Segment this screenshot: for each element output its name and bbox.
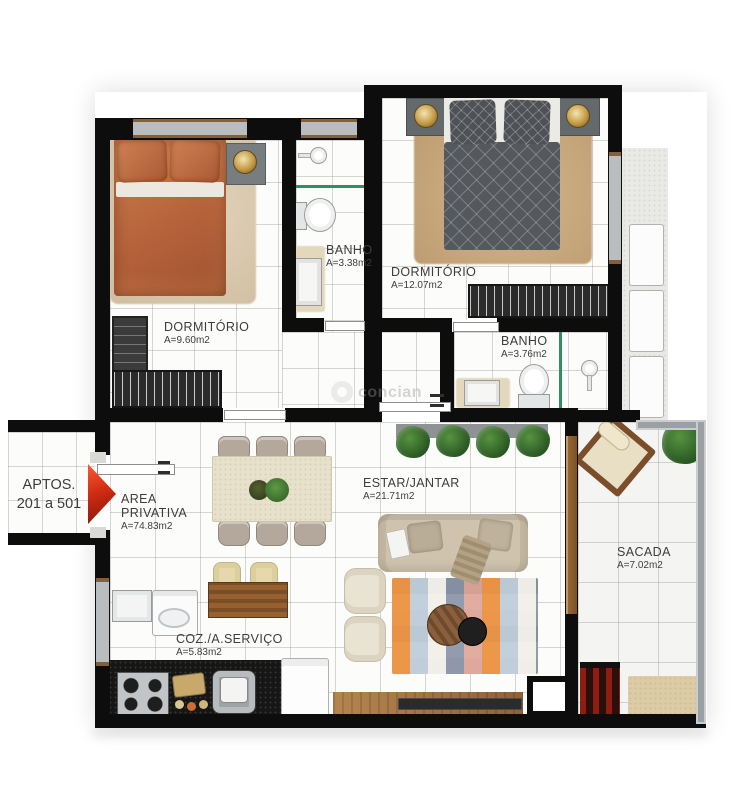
room-name: DORMITÓRIO [164, 320, 249, 334]
bedroom1-dresser [112, 370, 222, 408]
wall [440, 408, 578, 422]
room-area: A=21.71m2 [363, 491, 460, 502]
wall [565, 714, 706, 728]
room-area: A=9.60m2 [164, 335, 249, 346]
balcony-railing [696, 420, 706, 724]
wall [95, 714, 578, 728]
switch-mark [430, 394, 444, 397]
room-label-sacada: SACADA A=7.02m2 [617, 545, 671, 571]
window [609, 152, 621, 264]
laundry-tank [112, 590, 152, 622]
duct-box-inner [533, 682, 566, 711]
room-label-banho-1: BANHO A=3.38m2 [326, 243, 372, 269]
bath2-shower-arm [587, 375, 592, 391]
room-name: DORMITÓRIO [391, 265, 476, 279]
room-name: AREA PRIVATIVA [121, 492, 191, 520]
bedroom2-pillow [449, 99, 497, 145]
room-label-banho-2: BANHO A=3.76m2 [501, 334, 547, 360]
wall [282, 318, 324, 332]
room-name: ESTAR/JANTAR [363, 476, 460, 490]
room-label-dormitorio-2: DORMITÓRIO A=12.07m2 [391, 265, 476, 291]
coffee-table-black [458, 617, 487, 646]
wall [285, 408, 380, 422]
room-area: A=3.76m2 [501, 349, 547, 360]
room-area: A=12.07m2 [391, 280, 476, 291]
bedroom2-lamp [566, 104, 590, 128]
switch-mark [158, 471, 170, 474]
bowl [199, 700, 208, 709]
bath2-glass-divider [559, 332, 562, 408]
ac-unit [629, 356, 664, 418]
room-label-dormitorio-1: DORMITÓRIO A=9.60m2 [164, 320, 249, 346]
plant [476, 426, 510, 458]
room-name: SACADA [617, 545, 671, 559]
dining-table-plant [265, 478, 289, 502]
ac-unit [629, 290, 664, 352]
kitchen-sink-basin [220, 677, 248, 703]
entrance-sign: APTOS. 201 a 501 [8, 476, 90, 514]
window [133, 119, 247, 138]
bath2-toilet-tank [518, 394, 550, 409]
bedroom1-pillow [169, 139, 220, 183]
wall [8, 533, 95, 545]
room-area: A=74.83m2 [121, 521, 191, 532]
door-bath-2 [453, 322, 499, 332]
wall [578, 410, 640, 422]
armchair [344, 568, 386, 614]
tv [398, 698, 522, 710]
wall [368, 318, 452, 332]
bath2-toilet-bowl [519, 364, 549, 398]
door-bath-1 [325, 321, 365, 331]
window [301, 119, 357, 138]
wall [282, 118, 296, 332]
floor-plan: DORMITÓRIO A=9.60m2 BANHO A=3.38m2 DORMI… [0, 0, 755, 800]
wall [95, 118, 110, 455]
room-label-coz-servico: COZ./A.SERVIÇO A=5.83m2 [176, 632, 283, 658]
watermark-logo-icon [331, 381, 353, 403]
washing-machine-door [158, 608, 190, 628]
ac-unit [629, 224, 664, 286]
plant [516, 425, 550, 457]
dining-chair [218, 520, 250, 546]
sofa-cushion [406, 520, 443, 554]
bedroom1-sheet [116, 182, 224, 197]
plant [436, 425, 470, 457]
room-area: A=7.02m2 [617, 560, 671, 571]
room-name: COZ./A.SERVIÇO [176, 632, 283, 646]
switch-mark [158, 461, 170, 464]
cutting-board [172, 672, 206, 698]
bowl [187, 702, 196, 711]
room-label-estar-jantar: ESTAR/JANTAR A=21.71m2 [363, 476, 460, 502]
window [96, 578, 109, 666]
armchair [344, 616, 386, 662]
bowl [175, 700, 184, 709]
wall [8, 420, 95, 432]
bedroom2-dresser [468, 284, 614, 318]
dining-chair [294, 520, 326, 546]
bath1-toilet-bowl [304, 198, 336, 232]
bedroom2-duvet [444, 142, 560, 250]
breakfast-bar [208, 582, 288, 618]
bedroom1-wardrobe [112, 316, 148, 374]
watermark-text: concian [358, 384, 422, 402]
balcony-sliding-door [566, 436, 577, 614]
dining-chair [256, 520, 288, 546]
bedroom2-pillow [503, 99, 551, 145]
bath1-glass-divider [296, 185, 364, 188]
room-area: A=3.38m2 [326, 258, 372, 269]
stove [117, 672, 169, 716]
switch-mark [430, 404, 444, 407]
door-bedroom-1 [224, 410, 286, 420]
room-name: BANHO [501, 334, 547, 348]
balcony-mat [628, 676, 700, 716]
bath1-shower-head [310, 147, 327, 164]
bath1-vanity [294, 258, 322, 306]
wall [368, 85, 622, 98]
entrance-door-frame [90, 452, 106, 463]
barbecue-grill [580, 662, 620, 722]
plant [396, 426, 430, 458]
wall [95, 408, 223, 422]
room-label-area-privativa: AREA PRIVATIVA A=74.83m2 [121, 492, 191, 532]
bedroom1-lamp [233, 150, 257, 174]
wall [497, 318, 622, 332]
entrance-sign-line2: 201 a 501 [8, 495, 90, 514]
entrance-door-frame [90, 527, 106, 538]
room-name: BANHO [326, 243, 372, 257]
bath2-vanity [464, 380, 500, 406]
bottom-shadow-band [92, 727, 708, 738]
room-area: A=5.83m2 [176, 647, 283, 658]
entrance-sign-line1: APTOS. [8, 476, 90, 495]
fridge [281, 658, 329, 717]
bedroom1-pillow [116, 139, 167, 183]
bedroom2-lamp [414, 104, 438, 128]
